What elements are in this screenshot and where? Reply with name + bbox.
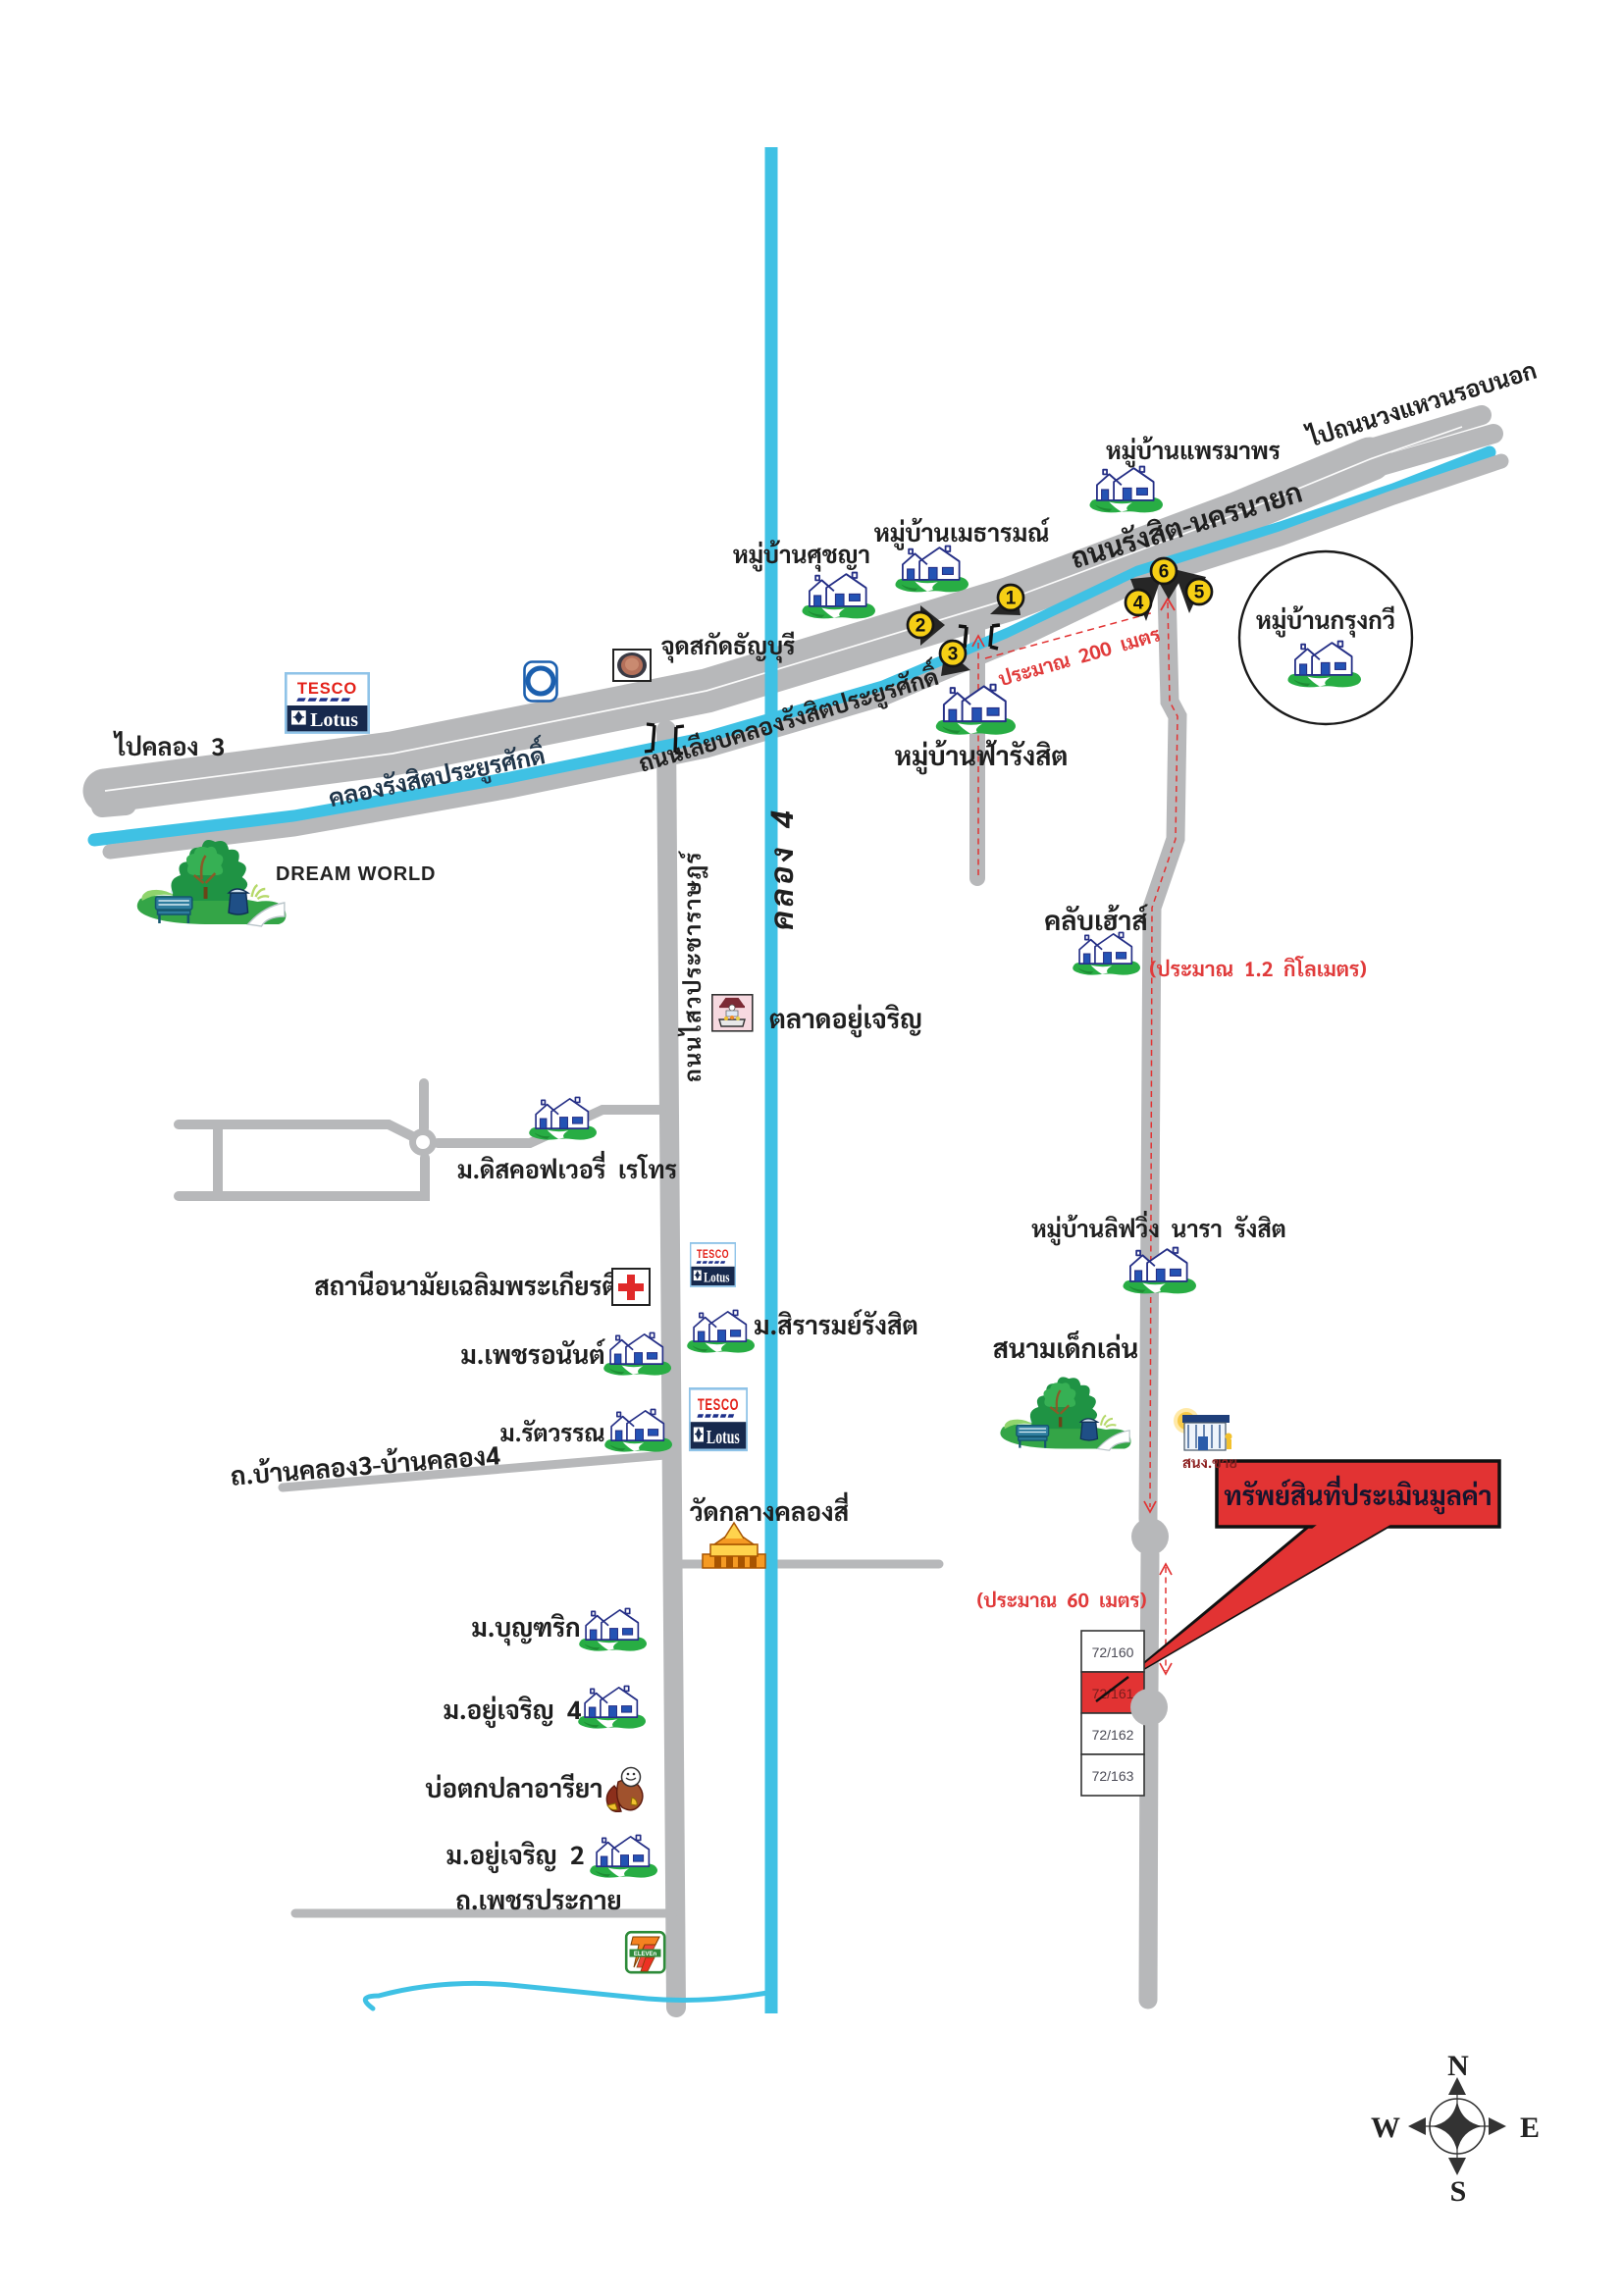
- svg-text:72/163: 72/163: [1092, 1768, 1134, 1784]
- svg-text:N: N: [1447, 2050, 1469, 2082]
- svg-text:S: S: [1450, 2175, 1467, 2208]
- svg-text:6: 6: [1159, 562, 1170, 583]
- svg-text:4: 4: [1133, 594, 1144, 614]
- svg-text:72/162: 72/162: [1092, 1727, 1134, 1743]
- svg-text:1: 1: [1006, 589, 1017, 609]
- svg-text:ELEVEn: ELEVEn: [634, 1952, 657, 1957]
- svg-text:W: W: [1371, 2112, 1400, 2144]
- svg-text:72/160: 72/160: [1092, 1644, 1134, 1660]
- svg-text:3: 3: [948, 645, 959, 665]
- svg-text:E: E: [1520, 2112, 1540, 2144]
- svg-text:5: 5: [1194, 583, 1205, 603]
- svg-text:DREAM WORLD: DREAM WORLD: [276, 863, 436, 885]
- svg-text:2: 2: [916, 616, 926, 637]
